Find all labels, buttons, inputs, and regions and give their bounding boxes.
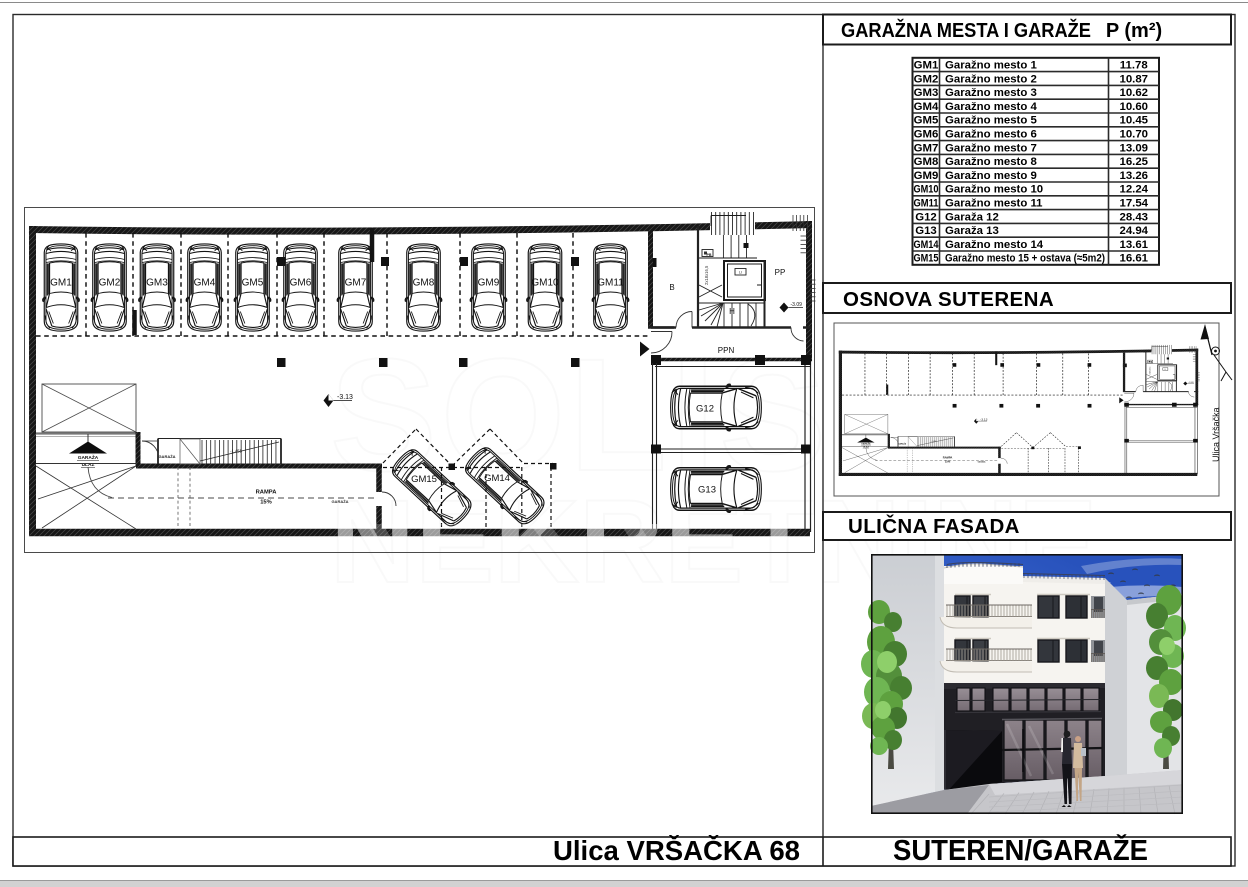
svg-text:SUTEREN/GARAŽE: SUTEREN/GARAŽE bbox=[893, 833, 1148, 867]
svg-text:16.25: 16.25 bbox=[1119, 156, 1148, 168]
svg-text:GM6: GM6 bbox=[290, 278, 312, 289]
svg-text:GM5: GM5 bbox=[914, 115, 939, 127]
svg-text:10.70: 10.70 bbox=[1119, 129, 1148, 141]
svg-text:Garažno mesto 14: Garažno mesto 14 bbox=[945, 239, 1044, 251]
svg-text:13.61: 13.61 bbox=[1119, 239, 1148, 251]
svg-text:H: H bbox=[729, 307, 735, 316]
svg-text:LI: LI bbox=[739, 270, 742, 275]
svg-text:Garažno mesto 5: Garažno mesto 5 bbox=[945, 115, 1037, 127]
svg-text:10.60: 10.60 bbox=[1119, 101, 1148, 113]
svg-text:GM11: GM11 bbox=[914, 198, 940, 210]
svg-text:-3.09: -3.09 bbox=[791, 302, 803, 308]
svg-text:Garaža 13: Garaža 13 bbox=[945, 225, 999, 237]
svg-text:PP: PP bbox=[775, 268, 786, 277]
svg-text:10.45: 10.45 bbox=[1119, 115, 1148, 127]
svg-text:13.09: 13.09 bbox=[1119, 142, 1148, 154]
svg-text:PB: PB bbox=[707, 253, 712, 257]
svg-text:11.78: 11.78 bbox=[1120, 60, 1148, 72]
svg-text:Ulica Vršačka: Ulica Vršačka bbox=[1211, 407, 1221, 462]
svg-text:-1.455: -1.455 bbox=[230, 449, 243, 454]
svg-text:GM3: GM3 bbox=[914, 87, 939, 99]
svg-text:15%: 15% bbox=[260, 500, 272, 506]
svg-text:GM1: GM1 bbox=[50, 278, 72, 289]
svg-text:Garažno mesto 2: Garažno mesto 2 bbox=[945, 73, 1037, 85]
svg-text:GM14: GM14 bbox=[914, 239, 940, 251]
svg-text:GM7: GM7 bbox=[345, 278, 367, 289]
svg-text:10.87: 10.87 bbox=[1119, 73, 1148, 85]
svg-text:Garažno mesto 4: Garažno mesto 4 bbox=[945, 101, 1037, 113]
svg-text:RAMPA: RAMPA bbox=[256, 490, 278, 496]
svg-text:GM4: GM4 bbox=[914, 101, 939, 113]
svg-text:-3.13: -3.13 bbox=[337, 394, 353, 401]
svg-text:Garažno mesto 3: Garažno mesto 3 bbox=[945, 87, 1037, 99]
svg-text:Garažno mesto 11: Garažno mesto 11 bbox=[945, 198, 1043, 210]
svg-text:G13: G13 bbox=[915, 225, 937, 237]
svg-text:GARAŽNA MESTA I GARAŽE: GARAŽNA MESTA I GARAŽE bbox=[841, 18, 1091, 42]
svg-text:GARAŽA: GARAŽA bbox=[78, 453, 99, 461]
svg-text:GM9: GM9 bbox=[478, 278, 500, 289]
svg-text:GM11: GM11 bbox=[597, 278, 624, 289]
svg-text:G13: G13 bbox=[698, 485, 716, 496]
svg-text:GM15: GM15 bbox=[914, 253, 940, 265]
svg-text:GM7: GM7 bbox=[914, 142, 939, 154]
svg-text:GM8: GM8 bbox=[914, 156, 939, 168]
svg-text:GM4: GM4 bbox=[194, 278, 216, 289]
svg-text:PPN: PPN bbox=[718, 346, 735, 355]
svg-text:GARAŽA: GARAŽA bbox=[158, 454, 175, 459]
svg-text:Ulica VRŠAČKA 68: Ulica VRŠAČKA 68 bbox=[553, 834, 800, 866]
svg-text:ULIČNA FASADA: ULIČNA FASADA bbox=[848, 514, 1020, 538]
svg-text:Garažno mesto 8: Garažno mesto 8 bbox=[945, 156, 1037, 168]
svg-text:GM10: GM10 bbox=[531, 278, 559, 289]
svg-text:Garažno mesto 1: Garažno mesto 1 bbox=[945, 60, 1037, 72]
svg-text:Garaža 12: Garaža 12 bbox=[945, 211, 999, 223]
svg-text:GM3: GM3 bbox=[146, 278, 168, 289]
svg-text:G12: G12 bbox=[915, 211, 937, 223]
svg-text:GM5: GM5 bbox=[242, 278, 264, 289]
svg-text:GM9: GM9 bbox=[914, 170, 939, 182]
svg-text:12.24: 12.24 bbox=[1119, 184, 1148, 196]
svg-text:Garažno mesto 7: Garažno mesto 7 bbox=[945, 142, 1037, 154]
svg-text:GM6: GM6 bbox=[914, 129, 939, 141]
svg-text:13.26: 13.26 bbox=[1119, 170, 1148, 182]
svg-text:P (m²): P (m²) bbox=[1106, 20, 1162, 42]
svg-text:24.94: 24.94 bbox=[1119, 225, 1148, 237]
svg-text:Garažno mesto 6: Garažno mesto 6 bbox=[945, 129, 1037, 141]
svg-text:2x18x16,5: 2x18x16,5 bbox=[704, 265, 709, 285]
svg-text:28.43: 28.43 bbox=[1119, 211, 1148, 223]
svg-text:B: B bbox=[669, 283, 674, 292]
svg-text:GM2: GM2 bbox=[914, 73, 939, 85]
svg-text:GM14: GM14 bbox=[484, 473, 510, 484]
svg-text:17.54: 17.54 bbox=[1119, 198, 1148, 210]
svg-text:16.61: 16.61 bbox=[1119, 253, 1148, 265]
svg-text:GARAŽA: GARAŽA bbox=[331, 499, 348, 504]
svg-text:G12: G12 bbox=[696, 404, 714, 415]
svg-text:OSNOVA SUTERENA: OSNOVA SUTERENA bbox=[843, 288, 1054, 311]
svg-text:Garažno mesto 10: Garažno mesto 10 bbox=[945, 184, 1043, 196]
svg-text:Garažno mesto 15 + ostava (≈5m: Garažno mesto 15 + ostava (≈5m2) bbox=[945, 253, 1105, 265]
svg-text:10.62: 10.62 bbox=[1119, 87, 1148, 99]
svg-text:GM10: GM10 bbox=[914, 184, 939, 196]
svg-text:GM8: GM8 bbox=[413, 278, 435, 289]
svg-text:GM2: GM2 bbox=[99, 278, 121, 289]
svg-text:GM1: GM1 bbox=[914, 60, 939, 72]
svg-text:Garažno mesto 9: Garažno mesto 9 bbox=[945, 170, 1037, 182]
svg-text:GM15: GM15 bbox=[411, 474, 437, 485]
